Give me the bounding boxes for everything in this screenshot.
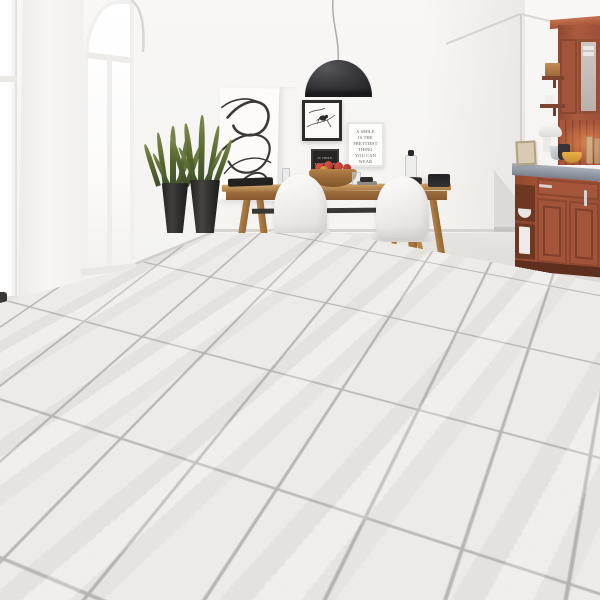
- door-handle: [584, 190, 587, 206]
- arched-window: [84, 0, 134, 274]
- left-window-transom: [0, 76, 17, 82]
- shelf-board: [515, 220, 535, 225]
- door-panel: [575, 208, 593, 260]
- dish-stack: [583, 46, 594, 50]
- chair-shell-back: [274, 174, 327, 236]
- carafe-stopper: [408, 150, 414, 156]
- chair-leg: [306, 236, 314, 278]
- glass-bottle: [594, 138, 600, 164]
- baseboard-back-wall: [210, 229, 496, 232]
- upper-cabinet-glass-door: [578, 39, 599, 114]
- chair-leg: [416, 239, 431, 285]
- wall-arch-outline: [128, 0, 148, 52]
- cup-on-shelf: [545, 95, 555, 104]
- cabinet-door: [569, 201, 599, 268]
- left-edge-window: [0, 0, 17, 302]
- wooden-box-on-shelf: [545, 63, 560, 76]
- stand-mixer-head: [539, 125, 562, 137]
- shelf-bracket: [553, 108, 556, 116]
- dining-room-photo: A SMILE IS THE PRETTIEST THING YOU CAN W…: [0, 0, 600, 600]
- arched-window-mullion: [107, 57, 112, 270]
- chair-leg: [389, 238, 397, 280]
- base-cabinet: [515, 174, 600, 276]
- black-placemat: [228, 177, 273, 187]
- door-panel: [543, 205, 561, 257]
- counter-picture-frame: [515, 140, 536, 165]
- snake-plant-right: [175, 115, 231, 183]
- white-bowl-in-shelf: [518, 208, 531, 218]
- open-end-shelf: [515, 184, 535, 260]
- pendant-cord: [325, 0, 345, 64]
- white-binder-in-shelf: [519, 226, 530, 254]
- shell-chair-right: [372, 176, 434, 288]
- white-column: [18, 0, 86, 318]
- chair-leg: [408, 238, 416, 280]
- cabinet-drawer: [537, 178, 599, 200]
- shelf-bracket: [553, 80, 556, 88]
- chair-leg: [314, 237, 329, 283]
- cabinet-door: [537, 198, 567, 265]
- shell-chair-left: [270, 174, 332, 286]
- dish-stack: [583, 52, 594, 56]
- chair-leg: [287, 236, 295, 278]
- column-base: [12, 301, 94, 318]
- quote-line: WEAR: [349, 159, 382, 165]
- chair-shell-back: [376, 176, 429, 238]
- bird-art-frame: [302, 100, 342, 141]
- dark-object-left-edge: [0, 292, 7, 303]
- window-light-pool-2: [0, 310, 190, 380]
- quote-poster: A SMILE IS THE PRETTIEST THING YOU CAN W…: [347, 122, 384, 167]
- glass-bottle: [586, 136, 593, 164]
